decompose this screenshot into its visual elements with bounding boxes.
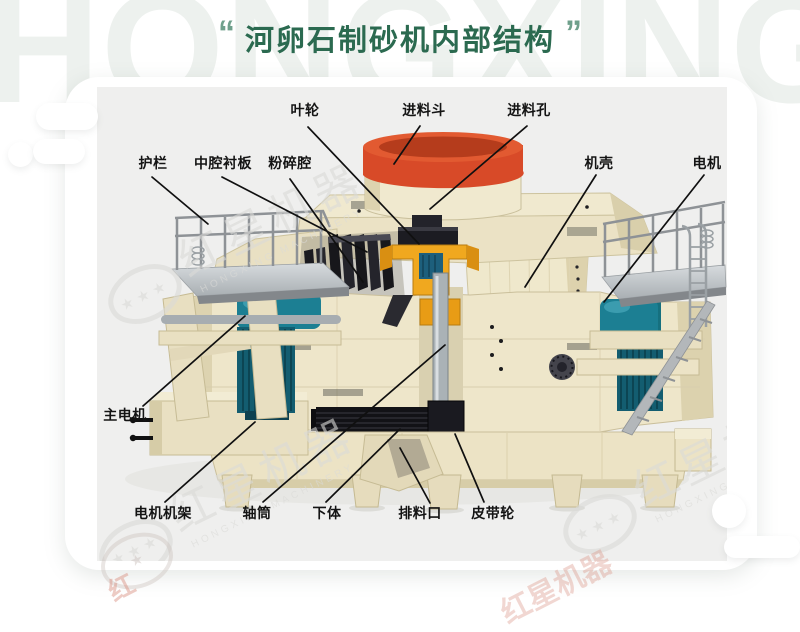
label-guardrail: 护栏 [131, 156, 175, 171]
label-shaft-tube: 轴筒 [235, 506, 279, 521]
decor-pill-left [33, 139, 85, 164]
open-quote-icon: “ [218, 14, 235, 52]
label-feed-hole: 进料孔 [496, 103, 562, 118]
feed-hopper-shape [363, 132, 524, 220]
decor-pill-top-left [36, 103, 98, 130]
decor-pill-bottom-right [724, 536, 800, 558]
label-motor-frame: 电机机架 [132, 506, 194, 521]
label-main-motor: 主电机 [101, 408, 149, 423]
page-title: 河卵石制砂机内部结构 [245, 17, 555, 59]
label-feed-hopper: 进料斗 [391, 103, 457, 118]
decor-circle-right [712, 494, 746, 528]
label-casing: 机壳 [577, 156, 621, 171]
label-lower-body: 下体 [305, 506, 349, 521]
page-title-row: “河卵石制砂机内部结构” [0, 14, 800, 59]
diagram-area: ★ ★ ★ 红星机器 HONGXING MACHINERY [97, 87, 727, 561]
label-cavity-liner: 中腔衬板 [192, 156, 254, 171]
close-quote-icon: ” [565, 14, 582, 52]
decor-circle-left [8, 142, 33, 167]
label-motor: 电机 [685, 156, 727, 171]
page: { "page": { "bg_watermark": "HONGXINGJIQ… [0, 0, 800, 596]
label-discharge-port: 排料口 [396, 506, 444, 521]
label-impeller: 叶轮 [283, 103, 327, 118]
label-belt-pulley: 皮带轮 [469, 506, 517, 521]
label-crushing-chamber: 粉碎腔 [266, 156, 314, 171]
